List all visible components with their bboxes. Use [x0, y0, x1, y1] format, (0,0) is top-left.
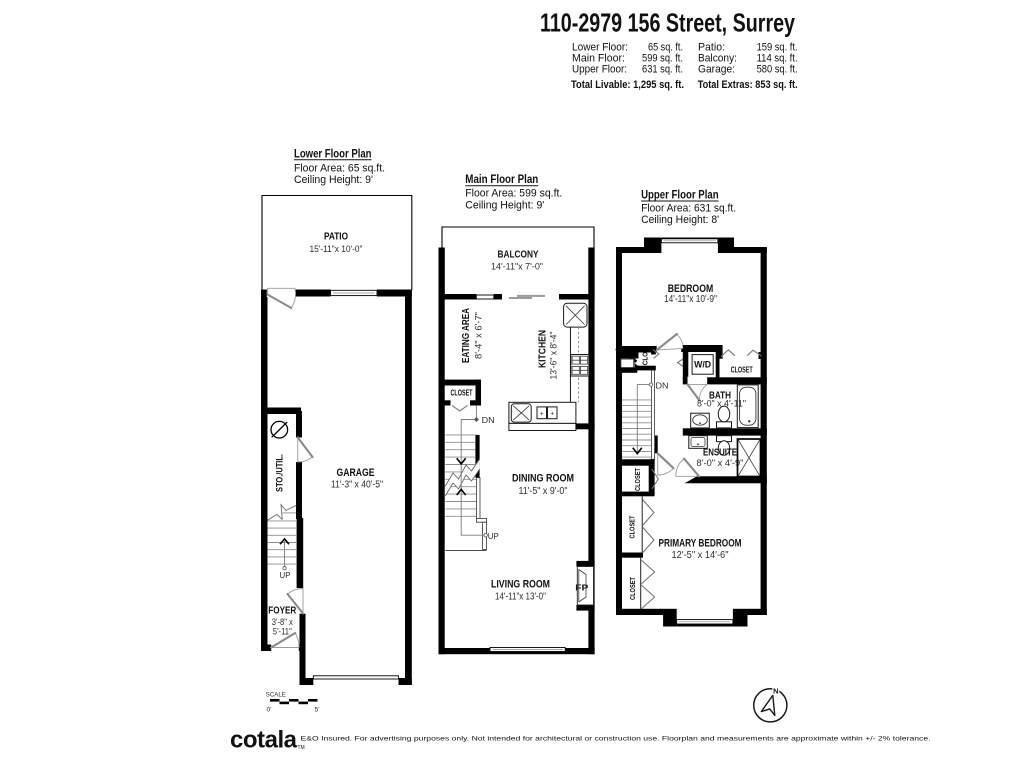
svg-text:Floor Area: 599 sq.ft.: Floor Area: 599 sq.ft.	[465, 187, 562, 199]
svg-text:110-2979 156 Street, Surrey: 110-2979 156 Street, Surrey	[540, 8, 795, 38]
svg-text:LIVING ROOM: LIVING ROOM	[491, 579, 550, 591]
svg-text:BALCONY: BALCONY	[498, 248, 539, 260]
svg-text:Floor Area: 65 sq.ft.: Floor Area: 65 sq.ft.	[294, 163, 385, 175]
svg-text:FOYER: FOYER	[268, 606, 297, 617]
svg-text:E&O Insured. For advertising p: E&O Insured. For advertising purposes on…	[301, 736, 931, 743]
svg-text:CLOSET: CLOSET	[627, 515, 636, 538]
svg-text:SCALE: SCALE	[266, 692, 286, 699]
svg-text:159 sq. ft.: 159 sq. ft.	[757, 41, 798, 53]
svg-text:CLOSET: CLOSET	[731, 366, 753, 375]
svg-text:Patio:: Patio:	[698, 41, 725, 53]
svg-text:Total Livable: 1,295 sq. ft.: Total Livable: 1,295 sq. ft.	[571, 79, 684, 91]
svg-text:CLO.: CLO.	[641, 350, 650, 365]
svg-text:W/D: W/D	[694, 360, 711, 370]
svg-text:15'-11"x 10'-0": 15'-11"x 10'-0"	[310, 244, 363, 255]
svg-text:Main Floor Plan: Main Floor Plan	[465, 174, 538, 186]
svg-text:FP: FP	[575, 583, 589, 592]
svg-text:Upper Floor:: Upper Floor:	[572, 63, 627, 75]
svg-text:PATIO: PATIO	[324, 231, 348, 243]
svg-text:Floor Area: 631 sq.ft.: Floor Area: 631 sq.ft.	[641, 203, 736, 215]
svg-text:Lower Floor Plan: Lower Floor Plan	[294, 148, 372, 160]
svg-text:CLOSET: CLOSET	[451, 389, 473, 398]
svg-text:UP: UP	[488, 532, 499, 541]
svg-text:+: +	[540, 412, 544, 418]
svg-text:14'-11"x 13'-0": 14'-11"x 13'-0"	[495, 592, 546, 603]
svg-text:5'-11": 5'-11"	[273, 626, 292, 636]
svg-text:+: +	[550, 412, 554, 418]
svg-text:580 sq. ft.: 580 sq. ft.	[757, 63, 798, 75]
svg-text:Upper Floor Plan: Upper Floor Plan	[641, 190, 719, 202]
svg-text:DINING ROOM: DINING ROOM	[512, 473, 574, 485]
svg-text:Garage:: Garage:	[698, 63, 735, 75]
svg-text:8'-0" x 4'-11": 8'-0" x 4'-11"	[697, 399, 746, 409]
svg-text:DN: DN	[656, 381, 669, 390]
svg-text:GARAGE: GARAGE	[337, 467, 375, 479]
svg-text:DN: DN	[482, 416, 495, 425]
svg-text:PRIMARY BEDROOM: PRIMARY BEDROOM	[659, 538, 742, 550]
svg-text:ENSUITE: ENSUITE	[703, 447, 737, 458]
svg-text:Ceiling Height: 8': Ceiling Height: 8'	[641, 214, 719, 226]
svg-text:Ceiling Height: 9': Ceiling Height: 9'	[294, 174, 373, 186]
svg-text:EATING AREA: EATING AREA	[461, 307, 472, 363]
svg-text:14'-11"x 7'-0": 14'-11"x 7'-0"	[491, 262, 543, 273]
svg-text:N: N	[773, 687, 778, 696]
svg-text:631 sq. ft.: 631 sq. ft.	[642, 63, 683, 75]
svg-text:TM: TM	[298, 745, 305, 751]
svg-text:5': 5'	[315, 707, 320, 714]
svg-text:STO./UTIL.: STO./UTIL.	[275, 454, 285, 492]
svg-text:13'-6" x 8'-4": 13'-6" x 8'-4"	[549, 332, 559, 380]
svg-text:CLOSET: CLOSET	[628, 577, 637, 600]
svg-text:Ceiling Height: 9': Ceiling Height: 9'	[465, 199, 544, 211]
svg-text:8'-4" x 6'-7": 8'-4" x 6'-7"	[474, 312, 484, 359]
svg-text:65 sq. ft.: 65 sq. ft.	[648, 41, 683, 53]
svg-text:Lower Floor:: Lower Floor:	[572, 41, 628, 53]
svg-text:11'-5" x 9'-0": 11'-5" x 9'-0"	[519, 486, 568, 497]
svg-text:UP: UP	[280, 571, 291, 580]
svg-text:8'-0" x 4'-9": 8'-0" x 4'-9"	[697, 458, 744, 468]
svg-text:KITCHEN: KITCHEN	[537, 330, 548, 368]
svg-text:Total Extras: 853 sq. ft.: Total Extras: 853 sq. ft.	[698, 79, 798, 91]
svg-text:12'-5" x 14'-6": 12'-5" x 14'-6"	[672, 550, 729, 561]
svg-text:0': 0'	[267, 707, 272, 714]
svg-text:11'-3" x 40'-5": 11'-3" x 40'-5"	[331, 480, 383, 491]
svg-text:CLOSET: CLOSET	[633, 468, 642, 491]
svg-text:14'-11"x 10'-9": 14'-11"x 10'-9"	[664, 294, 717, 305]
svg-text:cotala: cotala	[230, 726, 297, 753]
